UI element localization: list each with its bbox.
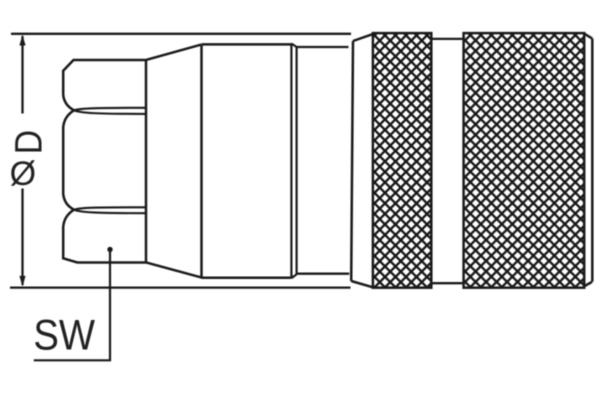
svg-text:Ø: Ø [10,155,36,193]
svg-text:D: D [6,130,49,154]
svg-text:SW: SW [33,311,95,359]
